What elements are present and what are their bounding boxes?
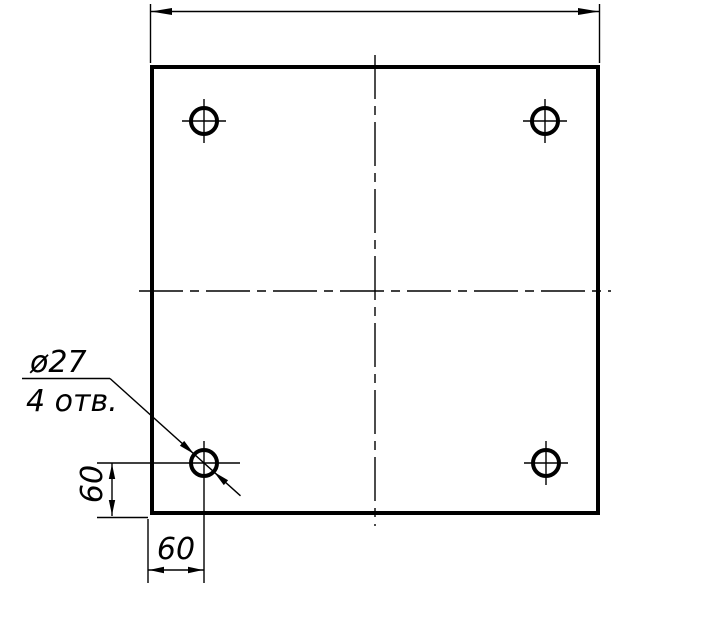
drawing-canvas: ø27 4 отв. 60 60 [0, 0, 713, 631]
vertical-offset-dimension: 60 [75, 463, 148, 518]
leader-note: ø27 4 отв. [22, 345, 241, 496]
hole-top-left [182, 99, 226, 143]
horizontal-offset-label: 60 [157, 532, 195, 567]
arrowhead-right-icon [578, 8, 599, 15]
top-width-dimension [150, 4, 600, 63]
arrowhead-right-icon [188, 567, 203, 573]
holes-count-label: 4 отв. [26, 384, 118, 419]
vertical-offset-label: 60 [75, 465, 110, 503]
horizontal-offset-dimension: 60 [148, 519, 204, 583]
diameter-label: ø27 [29, 345, 87, 380]
engineering-drawing: ø27 4 отв. 60 60 [0, 0, 713, 631]
hole-top-right [523, 99, 567, 143]
arrowhead-left-icon [149, 567, 164, 573]
arrowhead-left-icon [151, 8, 172, 15]
hole-bottom-right [524, 441, 568, 485]
